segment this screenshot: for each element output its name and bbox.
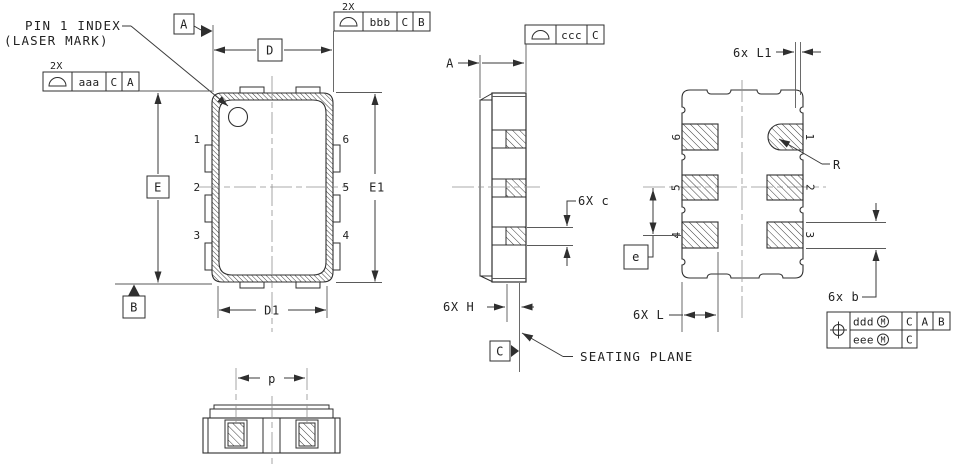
pin-label-4: 4 xyxy=(343,229,350,242)
front-body xyxy=(203,418,340,453)
datum-a-triangle-icon xyxy=(201,25,213,37)
bottom-pin-3: 3 xyxy=(803,232,816,239)
bottom-pin-2: 2 xyxy=(804,184,817,191)
seating-plane-callout: SEATING PLANE xyxy=(522,333,693,364)
datum-c-triangle-icon xyxy=(511,345,519,357)
fcf-profile-ccc: ccc C xyxy=(525,25,604,92)
fcf-ccc-tolerance: ccc xyxy=(561,29,582,42)
fcf-bbb-datum2: B xyxy=(418,16,425,29)
dim-6x-l1-label: 6x L1 xyxy=(733,46,772,60)
fcf-bbb-datum1: C xyxy=(402,16,409,29)
fcf-position-row1-tolerance: ddd xyxy=(853,316,874,329)
datum-b-triangle-icon xyxy=(128,285,140,297)
pad-1-dshape xyxy=(768,124,803,150)
bottom-view: 6 5 4 1 2 3 6x L1 R e xyxy=(624,42,950,348)
dim-e-pitch-label: e xyxy=(632,250,640,264)
dim-6x-h: 6X H xyxy=(443,283,534,372)
pin-label-1: 1 xyxy=(194,133,201,146)
fcf-position-row1-datum3: B xyxy=(938,316,945,329)
castellation-tabs xyxy=(205,87,340,288)
fcf-position-composite: ddd M C A B eee M C xyxy=(827,312,950,348)
pin-label-5: 5 xyxy=(343,181,350,194)
side-lid xyxy=(480,100,492,276)
dim-d1-label: D1 xyxy=(264,304,280,318)
dim-6x-c-label: 6X c xyxy=(578,194,609,208)
pin-label-6: 6 xyxy=(343,133,350,146)
dim-a: A xyxy=(446,55,524,98)
dim-p: p xyxy=(238,372,305,386)
top-view: 1 2 3 4 5 6 PIN 1 INDEX (LASER MARK) A xyxy=(4,2,430,332)
dim-6x-c: 6X c xyxy=(527,194,609,266)
front-lid xyxy=(210,409,333,418)
fcf-aaa-datum1: C xyxy=(111,76,118,89)
dim-6x-b: 6x b xyxy=(806,203,886,304)
fcf-profile-bbb: 2X bbb C B xyxy=(334,2,431,92)
datum-flag-c: C xyxy=(490,341,519,361)
package-outline-drawing: 1 2 3 4 5 6 PIN 1 INDEX (LASER MARK) A xyxy=(0,0,963,471)
seating-plane-label: SEATING PLANE xyxy=(580,349,693,364)
dim-p-label: p xyxy=(268,372,276,386)
dim-d-label: D xyxy=(266,44,274,58)
dim-d: D xyxy=(214,39,332,61)
pin1-index-mark xyxy=(229,108,248,127)
dim-6x-h-label: 6X H xyxy=(443,300,474,314)
dim-6x-b-label: 6x b xyxy=(828,290,859,304)
fcf-position-row2-modifier: M xyxy=(881,336,886,345)
fcf-position-row1-modifier: M xyxy=(881,318,886,327)
dim-e-pitch: e xyxy=(624,188,681,269)
bottom-pin-1: 1 xyxy=(803,134,816,141)
fcf-bbb-qty: 2X xyxy=(342,2,355,13)
fcf-position-row2-datum1: C xyxy=(906,334,913,347)
front-view: p xyxy=(203,368,340,465)
fcf-position-row2-tolerance: eee xyxy=(853,334,874,347)
drawing-canvas: 1 2 3 4 5 6 PIN 1 INDEX (LASER MARK) A xyxy=(0,0,963,471)
fcf-position-row1-datum2: A xyxy=(922,316,929,329)
dim-r-label: R xyxy=(833,158,841,172)
datum-b-label: B xyxy=(130,301,138,315)
bottom-pin-5: 5 xyxy=(670,184,683,191)
fcf-aaa-qty: 2X xyxy=(50,61,63,72)
datum-a-label: A xyxy=(180,18,188,32)
front-lid-top xyxy=(214,405,329,409)
datum-flag-b: B xyxy=(123,285,145,319)
datum-flag-a: A xyxy=(174,14,213,92)
fcf-aaa-datum2: A xyxy=(127,76,134,89)
dim-e1-label: E1 xyxy=(369,181,385,195)
fcf-bbb-tolerance: bbb xyxy=(370,16,391,29)
bottom-pin-6: 6 xyxy=(670,134,683,141)
fcf-aaa-tolerance: aaa xyxy=(79,76,100,89)
dim-6x-l-label: 6X L xyxy=(633,308,664,322)
fcf-position-row1-datum1: C xyxy=(906,316,913,329)
fcf-ccc-datum1: C xyxy=(592,29,599,42)
pin-label-3: 3 xyxy=(194,229,201,242)
fcf-profile-aaa: 2X aaa C A xyxy=(43,61,212,91)
dim-d1: D1 xyxy=(218,286,327,318)
pin1-callout-line1: PIN 1 INDEX xyxy=(25,18,121,33)
dim-a-label: A xyxy=(446,57,454,71)
pin-label-2: 2 xyxy=(194,181,201,194)
pin1-callout-line2: (LASER MARK) xyxy=(4,33,109,48)
dim-e-label: E xyxy=(154,181,162,195)
bottom-pin-4: 4 xyxy=(670,231,683,238)
datum-c-label: C xyxy=(496,345,504,359)
